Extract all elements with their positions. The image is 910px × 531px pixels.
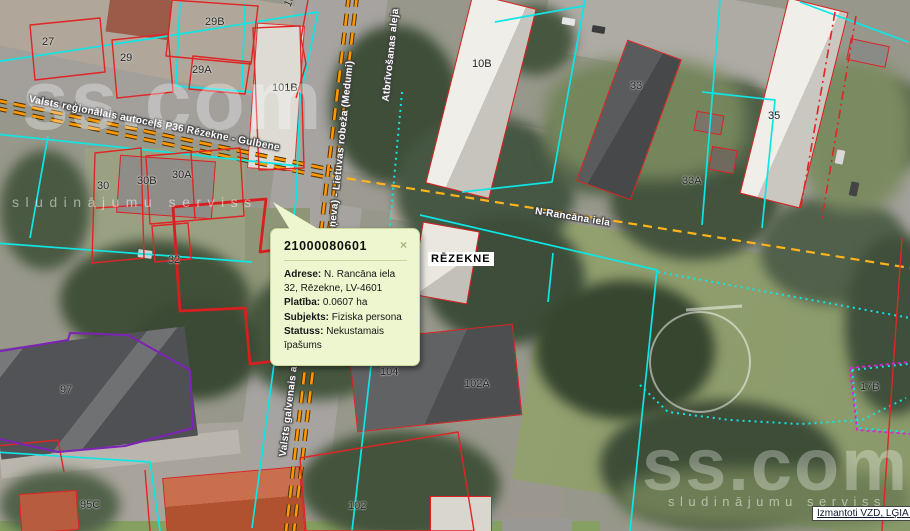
parcel-label-29a: 29A	[192, 64, 212, 76]
parcel-info-popup: 21000080601 × Adrese: N. Rancāna iela 32…	[270, 228, 420, 366]
popup-cadastre-number: 21000080601	[284, 239, 367, 253]
popup-field-adrese: Adrese: N. Rancāna iela 32, Rēzekne, LV-…	[284, 268, 407, 296]
parcel-label-102: 102	[348, 500, 366, 512]
parcel-label-35: 35	[768, 110, 780, 122]
football-field-markings	[650, 306, 750, 412]
popup-body: Adrese: N. Rancāna iela 32, Rēzekne, LV-…	[284, 268, 407, 353]
parcel-label-102a: 102A	[464, 378, 490, 390]
parcel-label-104: 104	[380, 366, 398, 378]
parcel-outline-purple-97	[0, 333, 193, 452]
parcel-label-10b: 10B	[472, 58, 492, 70]
parcel-label-101b: 101B	[272, 82, 298, 94]
city-label-rezekne: RĒZEKNE	[428, 252, 494, 266]
data-source-attribution-link[interactable]: Izmantoti VZD, LĢIA dati	[812, 506, 910, 521]
popup-field-platiba: Platība: 0.0607 ha	[284, 296, 407, 310]
parcel-label-97: 97	[60, 384, 72, 396]
parcel-label-95c: 95C	[80, 499, 100, 511]
parcel-label-29b: 29B	[205, 16, 225, 28]
parcel-label-17b: 17B	[860, 381, 880, 393]
parcel-outline-magenta-17b	[850, 362, 910, 434]
parcel-label-33: 33	[630, 80, 642, 92]
close-icon[interactable]: ×	[400, 239, 407, 251]
cadastre-satellite-map[interactable]: 27 29 29B 29A 101B 10B 33 35 33A 30 30B …	[0, 0, 910, 531]
popup-field-statuss: Statuss: Nekustamais īpašums	[284, 325, 407, 353]
parcel-label-32: 32	[168, 254, 180, 266]
parcel-label-33a: 33A	[682, 175, 702, 187]
popup-divider	[284, 260, 407, 261]
parcel-label-27: 27	[42, 36, 54, 48]
parcel-label-30b: 30B	[137, 175, 157, 187]
parcel-label-30: 30	[97, 180, 109, 192]
parcel-label-29: 29	[120, 52, 132, 64]
popup-field-subjekts: Subjekts: Fiziska persona	[284, 311, 407, 325]
parcel-label-30a: 30A	[172, 169, 192, 181]
